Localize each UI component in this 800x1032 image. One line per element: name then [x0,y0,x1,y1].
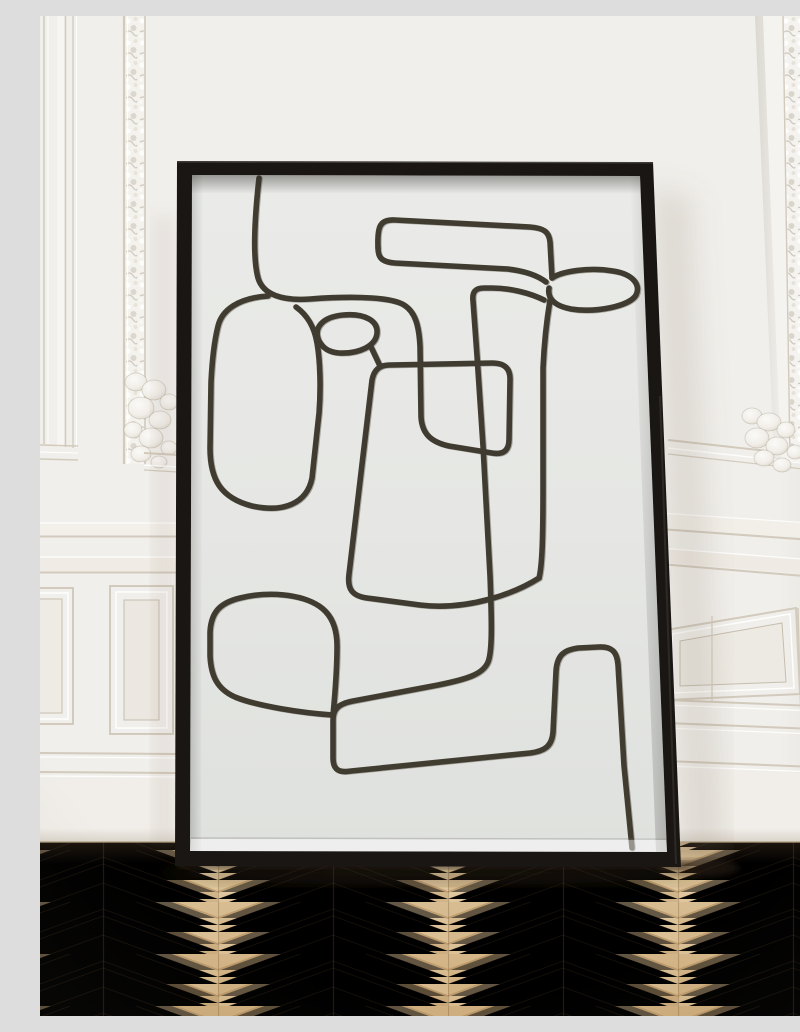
scene-canvas [40,16,800,1016]
photo-vignette [40,16,800,1016]
room-photo [40,16,800,1016]
